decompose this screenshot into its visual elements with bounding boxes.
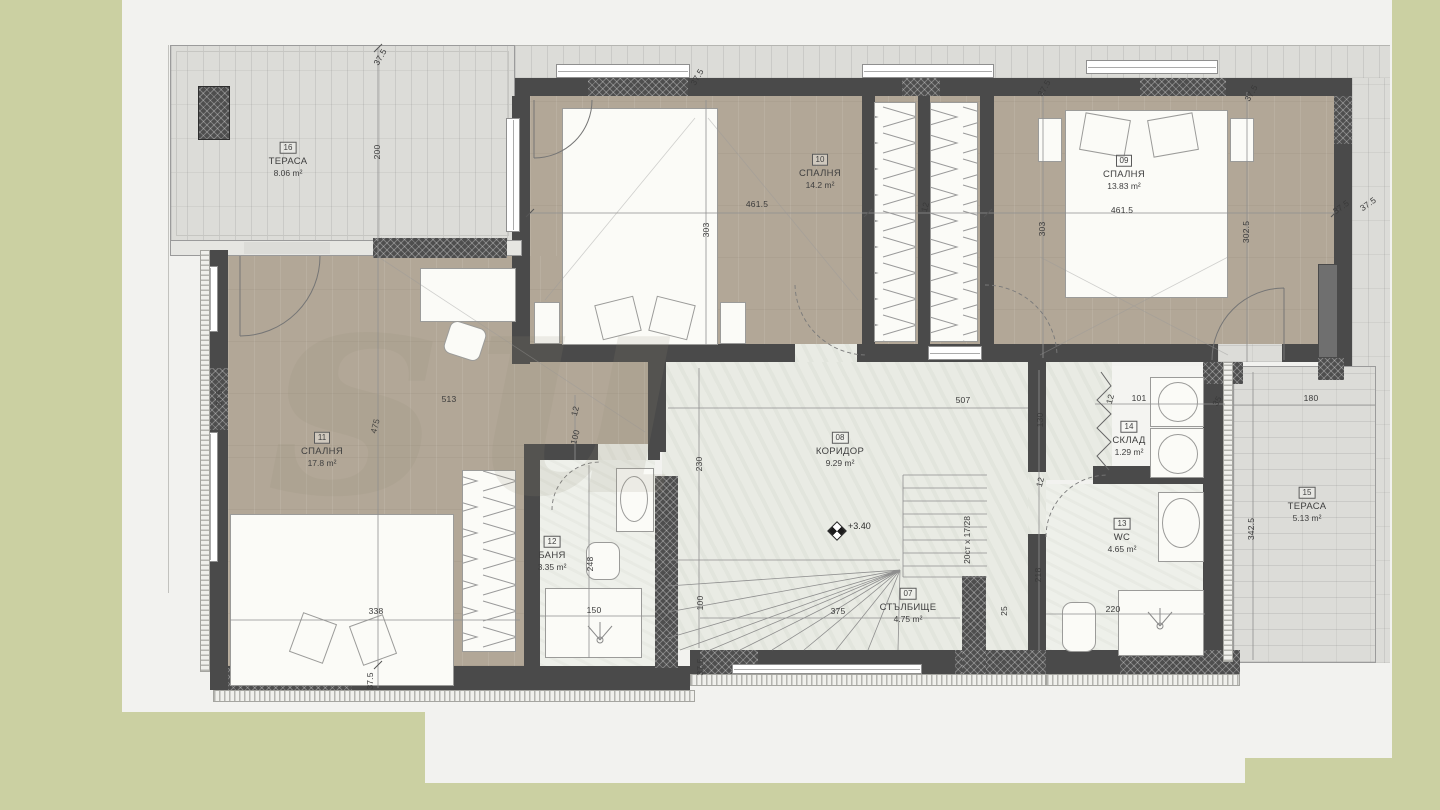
room-name: СПАЛНЯ <box>1103 169 1145 181</box>
insulation <box>200 250 210 672</box>
nightstand <box>1230 118 1254 162</box>
nightstand <box>720 302 746 344</box>
dimension-label: 25 <box>999 606 1009 616</box>
dimension-label: 513 <box>442 394 457 404</box>
pillow <box>1147 112 1199 157</box>
room-label-bedroom-09: 09 СПАЛНЯ 13.83 m² <box>1103 149 1145 192</box>
dimension-label: 100 <box>695 596 705 611</box>
dimension-label: 150 <box>587 605 602 615</box>
floor-hall-storage <box>1046 362 1112 480</box>
room-name: СПАЛНЯ <box>301 446 343 458</box>
room-area: 17.8 m² <box>301 458 343 469</box>
wall <box>918 96 930 354</box>
wall <box>648 344 666 452</box>
door-opening <box>1218 344 1282 362</box>
insulation <box>690 674 1046 686</box>
room-number: 15 <box>1299 487 1316 499</box>
nightstand <box>534 302 560 344</box>
room-area: 3.35 m² <box>538 562 567 573</box>
floor-plan-canvas: 37.520037.5461.530312461.5303302.537.537… <box>0 0 1440 810</box>
dimension-label: 507 <box>956 395 971 405</box>
dimension-label: 37.5 <box>365 672 375 689</box>
insulation <box>213 690 695 702</box>
insulation <box>1046 674 1240 686</box>
insulation <box>1223 362 1233 662</box>
dimension-label: 101 <box>1132 393 1147 403</box>
room-area: 1.29 m² <box>1112 447 1145 458</box>
room-number: 10 <box>812 154 829 166</box>
wall-hatch <box>588 78 688 96</box>
wardrobe <box>930 102 978 342</box>
dimension-label: 180 <box>1304 393 1319 403</box>
room-name: СТЪЛБИЩЕ <box>880 602 937 614</box>
room-label-terrace-16: 16 ТЕРАСА 8.06 m² <box>269 136 308 179</box>
wall <box>1203 484 1223 650</box>
room-name: КОРИДОР <box>816 446 864 458</box>
room-number: 09 <box>1116 155 1133 167</box>
room-label-staircase-07: 07 СТЪЛБИЩЕ 4.75 m² <box>880 582 937 625</box>
room-name: СПАЛНЯ <box>799 168 841 180</box>
dimension-label: 230 <box>694 457 704 472</box>
shower <box>1118 590 1204 656</box>
wall-hatch <box>1334 96 1352 144</box>
toilet <box>1062 602 1096 652</box>
room-name: ТЕРАСА <box>1288 501 1327 513</box>
dimension-label: 248 <box>585 557 595 572</box>
room-area: 13.83 m² <box>1103 181 1145 192</box>
room-number: 11 <box>314 432 330 444</box>
window <box>556 64 690 78</box>
window <box>506 118 520 232</box>
desk <box>420 268 516 322</box>
sink <box>620 476 648 522</box>
dimension-label: 37.5 <box>214 389 224 406</box>
window <box>732 664 922 674</box>
room-area: 8.06 m² <box>269 168 308 179</box>
dimension-label: 338 <box>369 606 384 616</box>
room-area: 4.75 m² <box>880 614 937 625</box>
dimension-label: 461.5 <box>1111 205 1133 215</box>
paper-sheet <box>1245 712 1392 758</box>
wall-hatch <box>1140 78 1226 96</box>
room-label-terrace-15: 15 ТЕРАСА 5.13 m² <box>1288 481 1327 524</box>
room-area: 4.65 m² <box>1108 544 1137 555</box>
dimension-label: 303 <box>1037 222 1047 237</box>
dimension-label: 200 <box>372 145 382 160</box>
room-label-bedroom-10: 10 СПАЛНЯ 14.2 m² <box>799 148 841 191</box>
site-boundary-line <box>168 45 169 593</box>
window <box>1086 60 1218 74</box>
paper-sheet <box>425 712 1245 783</box>
dimension-label: 303 <box>701 223 711 238</box>
wardrobe <box>462 470 516 652</box>
room-label-bedroom-11: 11 СПАЛНЯ 17.8 m² <box>301 426 343 469</box>
room-name: БАНЯ <box>538 550 567 562</box>
dimension-label: 302.5 <box>1241 221 1251 243</box>
wardrobe <box>1318 264 1338 358</box>
bed <box>230 514 454 686</box>
washing-machine-drum <box>1158 382 1198 422</box>
room-label-corridor-08: 08 КОРИДОР 9.29 m² <box>816 426 864 469</box>
room-label-bathroom-12: 12 БАНЯ 3.35 m² <box>538 530 567 573</box>
wall-hatch <box>902 78 940 96</box>
wall-hatch <box>373 238 507 258</box>
room-area: 14.2 m² <box>799 180 841 191</box>
wall-hatch <box>1318 358 1344 380</box>
stairs-note: 20ст x 17/28 <box>962 516 972 564</box>
door-opening <box>795 344 857 362</box>
wall-hatch <box>655 476 678 668</box>
dimension-label: 130 <box>1035 413 1045 428</box>
room-number: 14 <box>1121 421 1138 433</box>
wardrobe <box>874 102 916 342</box>
door-opening <box>598 444 648 460</box>
room-number: 08 <box>832 432 849 444</box>
room-area: 5.13 m² <box>1288 513 1327 524</box>
washing-machine-drum <box>1158 434 1198 474</box>
room-number: 13 <box>1114 518 1131 530</box>
room-label-storage-14: 14 СКЛАД 1.29 m² <box>1112 415 1145 458</box>
dimension-label: 218 <box>1033 568 1043 583</box>
dimension-label: 461.5 <box>746 199 768 209</box>
window <box>862 64 994 78</box>
nightstand <box>1038 118 1062 162</box>
dimension-label: 342.5 <box>1246 518 1256 540</box>
dimension-label: 375 <box>831 606 846 616</box>
dimension-label: 37.5 <box>695 658 705 675</box>
room-number: 12 <box>544 536 561 548</box>
room-number: 07 <box>900 588 917 600</box>
room-number: 16 <box>280 142 297 154</box>
room-area: 9.29 m² <box>816 458 864 469</box>
dimension-label: 220 <box>1106 604 1121 614</box>
wall <box>980 96 994 354</box>
level-mark-value: +3.40 <box>848 521 871 531</box>
room-name: WC <box>1108 532 1137 544</box>
shower <box>545 588 642 658</box>
sink <box>1162 498 1200 548</box>
door-opening <box>244 242 330 254</box>
terrace-16-inner-line <box>176 51 509 236</box>
room-name: СКЛАД <box>1112 435 1145 447</box>
room-name: ТЕРАСА <box>269 156 308 168</box>
room-label-wc-13: 13 WC 4.65 m² <box>1108 512 1137 555</box>
window <box>928 346 982 360</box>
wall-hatch <box>962 576 986 680</box>
terrace-pillar <box>198 86 230 140</box>
